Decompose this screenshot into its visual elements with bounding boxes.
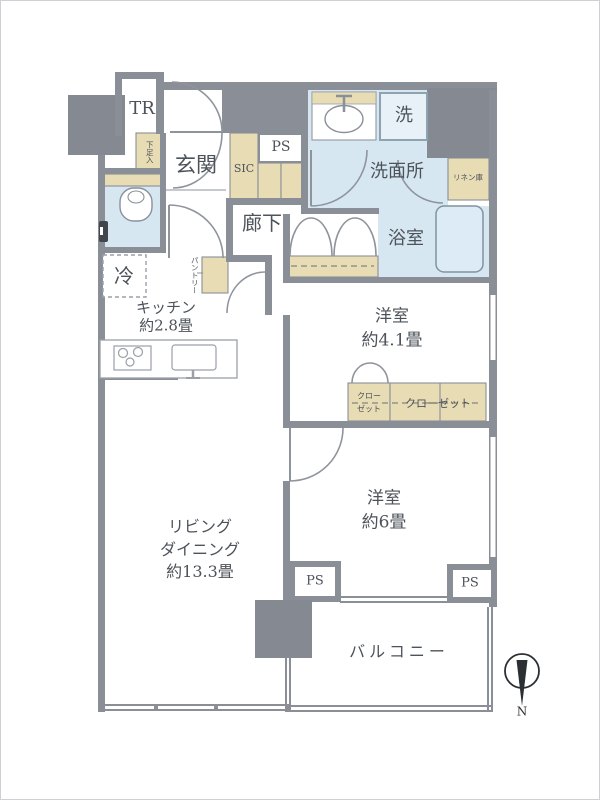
- room-label-linen: リネン庫: [453, 174, 483, 182]
- closet-small-box: [348, 383, 390, 421]
- pillar-bottom: [255, 600, 312, 658]
- room-label-entrance: 玄関: [175, 154, 217, 178]
- floorplan-drawing: [0, 0, 600, 800]
- room-label-living-3: 約13.3畳: [166, 563, 234, 581]
- pantry-box: [202, 257, 228, 293]
- shelf-box-2: [281, 163, 303, 200]
- corridor-closet-door-arc: [355, 218, 376, 256]
- bedroom1-window: [491, 295, 496, 360]
- room-label-ps-top: PS: [271, 140, 290, 156]
- bedroom2-door-arc: [290, 428, 343, 481]
- room-label-closet-small-2: ゼット: [357, 406, 381, 415]
- room-label-bath: 浴室: [388, 229, 424, 249]
- room-label-bedroom2-2: 約6畳: [362, 513, 407, 532]
- room-label-ps-left: PS: [306, 575, 324, 590]
- room-label-bedroom2-1: 洋室: [367, 489, 401, 508]
- toilet-door-handle-icon: [99, 221, 108, 242]
- room-label-living-2: ダイニング: [160, 541, 240, 559]
- bedroom1-door-arc: [227, 272, 265, 313]
- room-label-closet-wide: クローゼット: [405, 398, 471, 410]
- room-label-bedroom1-2: 約4.1畳: [361, 331, 422, 350]
- room-label-fridge: 冷: [114, 265, 134, 287]
- kitchen-counter-icon: [100, 340, 237, 378]
- room-label-ps-right: PS: [461, 577, 479, 592]
- toilet-shelf: [104, 174, 162, 186]
- pillar-top-right: [427, 88, 497, 158]
- corridor-door-arc: [169, 205, 223, 258]
- room-label-shoe-cabinet: 下足入: [145, 141, 153, 164]
- floorplan-page: TR 下足入 玄関 SIC PS 廊下 洗面所 洗 リネン庫 浴室 冷 パントリ…: [0, 0, 600, 800]
- room-label-closet-small-1: クロー: [357, 393, 381, 402]
- washbasin-icon: [312, 92, 376, 140]
- shelf-box-1: [258, 163, 281, 200]
- closet-small-door-arc: [352, 363, 370, 383]
- room-label-washroom: 洗面所: [370, 162, 424, 182]
- corridor-closet-door-arc: [334, 218, 355, 256]
- closet-small-door-arc: [370, 363, 388, 383]
- room-label-balcony: バルコニー: [349, 643, 449, 661]
- compass-north-label: N: [517, 705, 528, 718]
- room-label-trunk: TR: [129, 99, 155, 119]
- room-label-laundry: 洗: [395, 106, 413, 126]
- room-label-kitchen-2: 約2.8畳: [139, 318, 193, 335]
- room-label-corridor: 廊下: [242, 212, 282, 234]
- room-label-kitchen-1: キッチン: [136, 300, 196, 317]
- compass-icon: [505, 654, 539, 706]
- room-label-living-1: リビング: [168, 518, 232, 536]
- corridor-closet-door-arc: [311, 218, 332, 256]
- stove-icon: [114, 346, 151, 370]
- room-label-bedroom1-1: 洋室: [375, 307, 409, 326]
- bathtub-icon: [436, 206, 483, 272]
- corridor-closet-door-arc: [290, 218, 311, 256]
- bedroom2-window: [491, 437, 496, 557]
- toilet-icon: [120, 188, 152, 221]
- room-label-sic: SIC: [234, 163, 254, 175]
- room-label-pantry: パントリー: [190, 256, 198, 294]
